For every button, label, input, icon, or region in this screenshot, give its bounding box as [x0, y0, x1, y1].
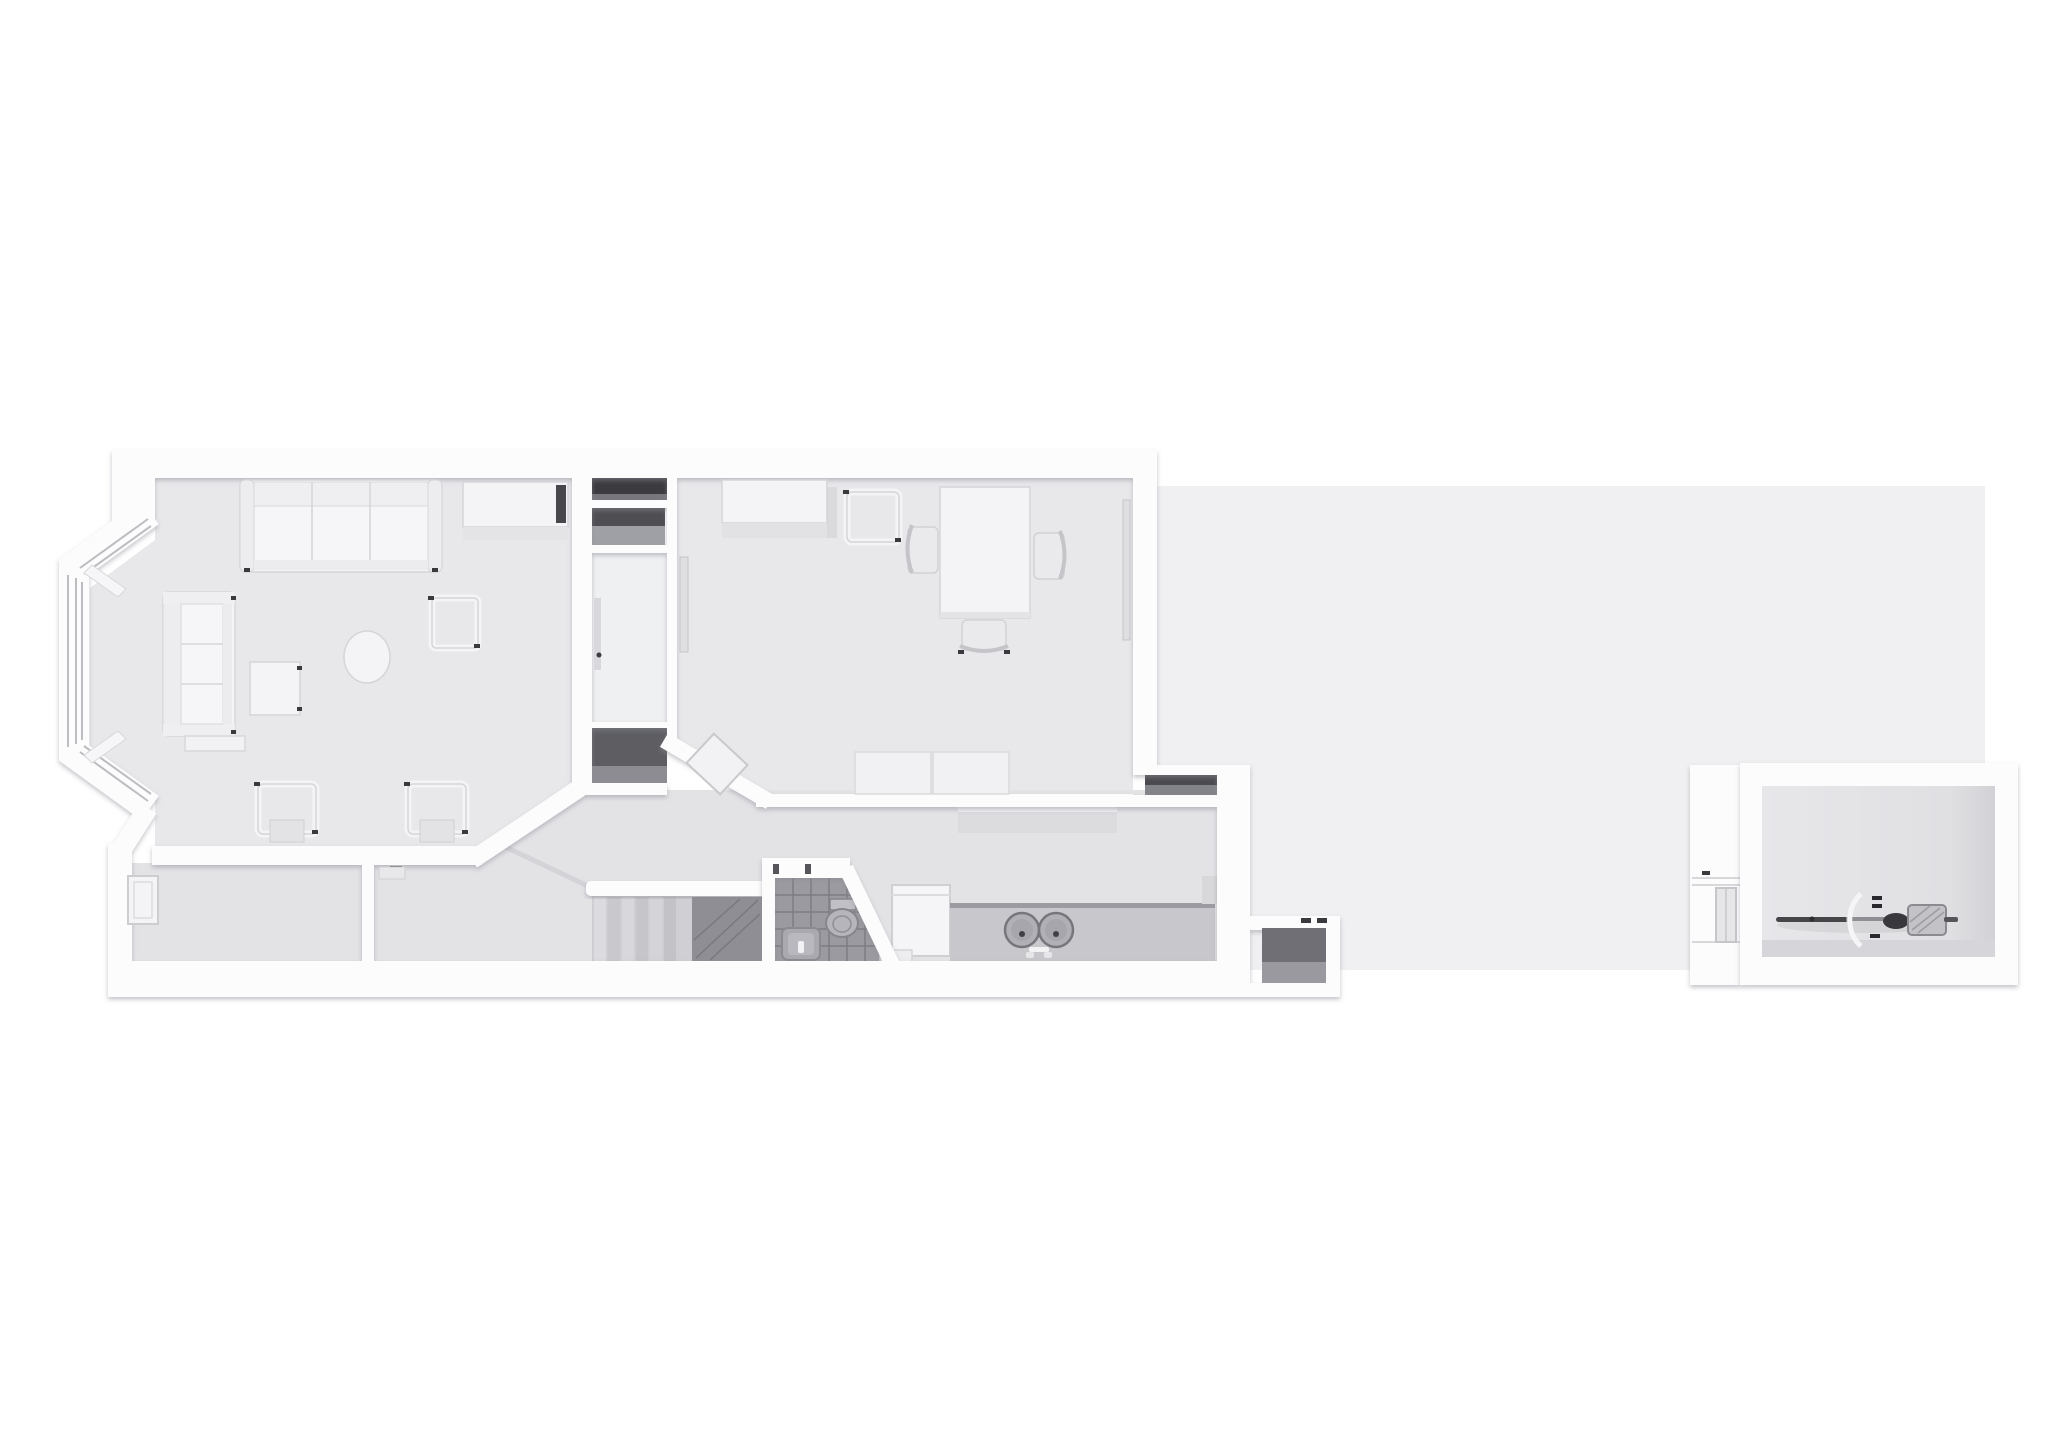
wardrobe-shadow	[827, 487, 837, 538]
sofa2-seats	[181, 604, 223, 724]
hallway-radiator	[379, 867, 405, 879]
hall-door	[594, 598, 601, 670]
understair-cupboard-dark	[592, 726, 667, 766]
shelf-niche-floor	[592, 526, 665, 546]
floor-plan-svg	[0, 0, 2048, 1448]
sofa2-front-rail	[223, 604, 232, 724]
store-hinge-1	[1301, 918, 1311, 923]
shed-side-gate	[1690, 765, 1740, 985]
oval-side-table	[344, 631, 390, 683]
sink-basin-right	[1045, 919, 1067, 941]
bicycle-pedal-3	[1870, 934, 1880, 938]
floor-plan-render	[0, 0, 2048, 1448]
chair2-foot-a	[404, 782, 410, 786]
hallway-arch-stub	[362, 863, 374, 963]
niche-divider-4	[592, 783, 667, 795]
bay-to-hallway-corner	[120, 808, 148, 852]
sink-drain-right	[1053, 931, 1059, 937]
front-hub	[1810, 917, 1815, 922]
sofa-front-rail	[254, 560, 428, 570]
sofa-three-seat	[240, 480, 442, 572]
kitchen-right-exterior-wall	[1217, 765, 1250, 997]
table-chair-bottom	[958, 620, 1010, 654]
bicycle-rear-axle	[1944, 917, 1958, 922]
sofa-foot-right	[432, 568, 438, 572]
shed-floor-bottom-shade	[1762, 940, 1995, 957]
chair2-foot-b	[462, 830, 468, 834]
sofa2-arm-top	[163, 592, 235, 604]
table-chair-left	[908, 525, 939, 573]
wardrobe-front	[722, 523, 827, 538]
niche-divider-1	[592, 500, 667, 508]
sideboard-front	[463, 527, 568, 540]
table-leg-2	[297, 707, 302, 711]
bicycle-saddle	[1883, 913, 1909, 929]
front-top-exterior-wall	[118, 450, 1157, 478]
understair-cupboard-floor	[592, 766, 667, 784]
table-edge-shadow	[940, 612, 1030, 618]
sofa2-arm-bottom	[163, 724, 235, 736]
connecting-hall-floor	[592, 552, 667, 723]
sofa-back-cushions	[254, 482, 428, 506]
sofa-seat-cushions	[254, 506, 428, 562]
bottom-exterior-wall	[108, 961, 1250, 997]
bathroom-door-tick-1	[773, 864, 779, 874]
bicycle-rear-basket	[1908, 905, 1946, 935]
chair1-foot-b	[312, 830, 318, 834]
dining-radiator-left	[680, 557, 688, 652]
sofa2-foot-top	[231, 596, 236, 600]
stair-treads	[594, 897, 690, 961]
bottom-chair-foot-b	[1004, 650, 1010, 654]
sofa-two-seat	[163, 592, 236, 736]
basin-tap	[798, 941, 804, 953]
store-bottom-wall	[1250, 983, 1340, 997]
stair-handrail	[586, 881, 768, 896]
garden-room	[1690, 763, 2018, 985]
bottom-chair-foot-a	[958, 650, 964, 654]
dining-radiator-right	[1123, 500, 1130, 640]
sink-tap	[1029, 947, 1049, 952]
bicycle-pedal-1	[1872, 896, 1882, 900]
sofa-arm-left	[240, 480, 254, 572]
dining-bottom-wall	[756, 794, 1133, 807]
bicycle-pedal-2	[1872, 904, 1882, 908]
chair1-pad	[270, 820, 304, 842]
sofa2-back	[163, 592, 181, 736]
coffee-table-square	[250, 662, 302, 715]
store-hinge-2	[1317, 918, 1327, 923]
tap-handle-left	[1026, 952, 1034, 958]
bathroom-door-tick-2	[805, 864, 811, 874]
ottoman	[185, 736, 245, 751]
sofa-foot-left	[244, 568, 250, 572]
wardrobe	[722, 480, 837, 538]
hall-door-handle	[597, 653, 602, 658]
sink-drain-left	[1019, 931, 1025, 937]
store-interior-floor	[1262, 962, 1326, 983]
dining-right-exterior-wall	[1133, 450, 1157, 765]
chair2-pad	[420, 820, 454, 842]
bench-cushion-left	[855, 752, 931, 794]
niche-divider-3	[592, 722, 667, 728]
sideboard-dark-edge	[556, 485, 566, 523]
gate-hinge	[1702, 871, 1710, 875]
chimney-left-wall	[572, 472, 592, 795]
sink-basin-left	[1011, 919, 1033, 941]
chair1-foot-a	[254, 782, 260, 786]
frame-table-foot-2	[474, 644, 480, 648]
counter-back-edge	[950, 903, 1215, 908]
toilet-bowl	[826, 909, 858, 937]
niche-divider-2	[592, 545, 667, 553]
sofa2-foot-bottom	[231, 730, 236, 734]
table-chair-right	[1034, 531, 1065, 579]
kitchen-counter	[950, 903, 1215, 961]
sideboard	[463, 482, 568, 540]
table-leg-1	[297, 666, 302, 670]
shelf-niche-back	[592, 506, 665, 526]
bench-cushion-right	[933, 752, 1009, 794]
tap-handle-right	[1044, 952, 1052, 958]
frame-chair-foot-b	[895, 538, 901, 542]
frame-chair-foot-a	[843, 490, 849, 494]
table	[940, 487, 1030, 618]
chimney-right-wall	[667, 472, 677, 745]
counter-return	[1202, 876, 1217, 904]
living-bottom-wall	[152, 846, 482, 865]
sofa-arm-right	[428, 480, 442, 572]
front-door	[128, 876, 158, 924]
frame-table-foot-1	[428, 596, 434, 600]
